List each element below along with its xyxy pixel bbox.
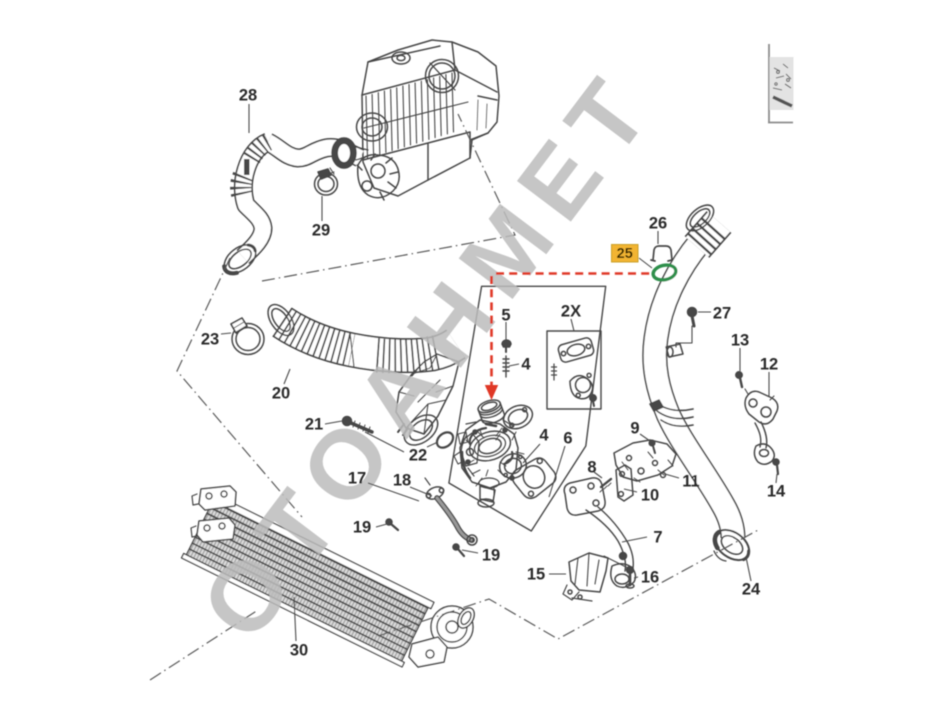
svg-text:30: 30 <box>290 642 308 660</box>
svg-text:26: 26 <box>649 215 667 233</box>
svg-text:22: 22 <box>409 447 427 465</box>
svg-text:4: 4 <box>521 356 531 374</box>
svg-text:24: 24 <box>742 581 761 599</box>
svg-text:8: 8 <box>587 459 596 477</box>
svg-text:12: 12 <box>760 356 778 374</box>
svg-text:19: 19 <box>482 547 500 565</box>
svg-text:4: 4 <box>539 427 549 445</box>
svg-text:5: 5 <box>501 307 510 325</box>
svg-text:2X: 2X <box>561 303 581 321</box>
svg-text:16: 16 <box>641 569 659 587</box>
svg-text:7: 7 <box>653 529 662 547</box>
svg-text:23: 23 <box>201 331 219 349</box>
svg-text:10: 10 <box>641 487 659 505</box>
svg-text:15: 15 <box>527 566 545 584</box>
svg-text:14: 14 <box>767 483 786 501</box>
svg-text:20: 20 <box>272 385 290 403</box>
svg-text:6: 6 <box>563 430 572 448</box>
svg-text:9: 9 <box>630 420 639 438</box>
svg-text:25: 25 <box>617 246 633 262</box>
svg-text:21: 21 <box>305 416 323 434</box>
svg-text:11: 11 <box>682 473 699 491</box>
svg-text:19: 19 <box>353 519 371 537</box>
svg-text:27: 27 <box>713 305 731 323</box>
svg-text:29: 29 <box>312 222 330 240</box>
svg-text:18: 18 <box>393 472 411 490</box>
svg-text:13: 13 <box>731 332 749 350</box>
svg-text:28: 28 <box>239 87 257 105</box>
svg-text:17: 17 <box>348 470 366 488</box>
